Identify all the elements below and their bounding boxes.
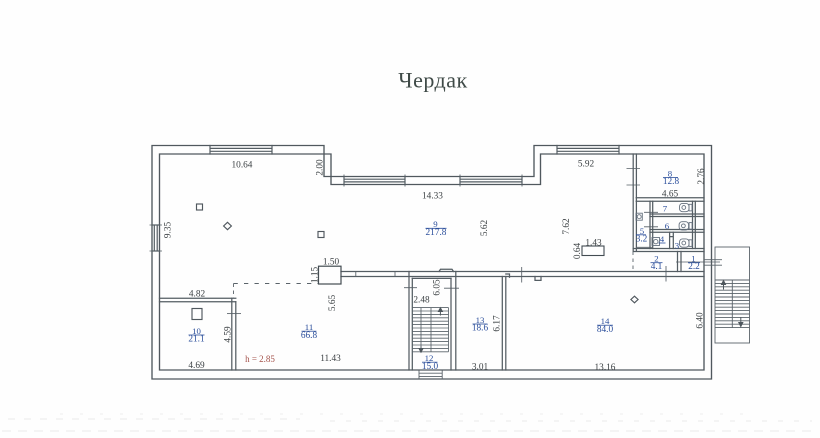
svg-text:11.43: 11.43 [320, 354, 341, 364]
svg-text:10.64: 10.64 [232, 161, 253, 171]
svg-text:6.40: 6.40 [696, 312, 706, 329]
svg-text:7.62: 7.62 [562, 218, 572, 235]
svg-text:2.76: 2.76 [697, 168, 707, 185]
svg-text:84.0: 84.0 [597, 325, 614, 335]
svg-text:4.1: 4.1 [651, 262, 663, 272]
svg-text:0.64: 0.64 [573, 243, 583, 260]
svg-text:217.8: 217.8 [426, 228, 447, 238]
svg-text:13.16: 13.16 [595, 363, 616, 373]
svg-text:4.59: 4.59 [224, 326, 234, 343]
svg-text:12.8: 12.8 [663, 177, 680, 187]
svg-text:2.00: 2.00 [316, 159, 326, 176]
svg-text:15.0: 15.0 [422, 362, 439, 372]
svg-text:Чердак: Чердак [398, 68, 467, 93]
svg-text:4: 4 [660, 234, 665, 244]
svg-text:5.92: 5.92 [578, 160, 595, 170]
svg-text:21.1: 21.1 [188, 335, 205, 345]
svg-text:6.05: 6.05 [433, 279, 443, 296]
svg-text:1.43: 1.43 [585, 239, 602, 249]
svg-text:1.50: 1.50 [323, 257, 340, 267]
svg-text:2.2: 2.2 [688, 262, 700, 272]
svg-text:h = 2.85: h = 2.85 [245, 354, 275, 364]
svg-text:2.48: 2.48 [413, 296, 430, 306]
svg-text:6: 6 [665, 221, 670, 231]
svg-text:5.65: 5.65 [328, 295, 338, 312]
svg-text:66.8: 66.8 [301, 331, 318, 341]
svg-text:5.62: 5.62 [480, 220, 490, 237]
svg-text:4.65: 4.65 [662, 190, 679, 200]
svg-text:4.82: 4.82 [189, 290, 206, 300]
svg-text:18.6: 18.6 [472, 324, 489, 334]
svg-text:3: 3 [675, 241, 680, 251]
svg-text:3.01: 3.01 [472, 363, 489, 373]
svg-text:3.2: 3.2 [636, 235, 648, 245]
svg-text:6.17: 6.17 [493, 315, 503, 332]
svg-text:1.15: 1.15 [311, 267, 321, 284]
svg-text:7: 7 [663, 204, 668, 214]
svg-text:14.33: 14.33 [422, 192, 443, 202]
svg-text:4.69: 4.69 [188, 361, 205, 371]
svg-text:9.35: 9.35 [164, 222, 174, 239]
